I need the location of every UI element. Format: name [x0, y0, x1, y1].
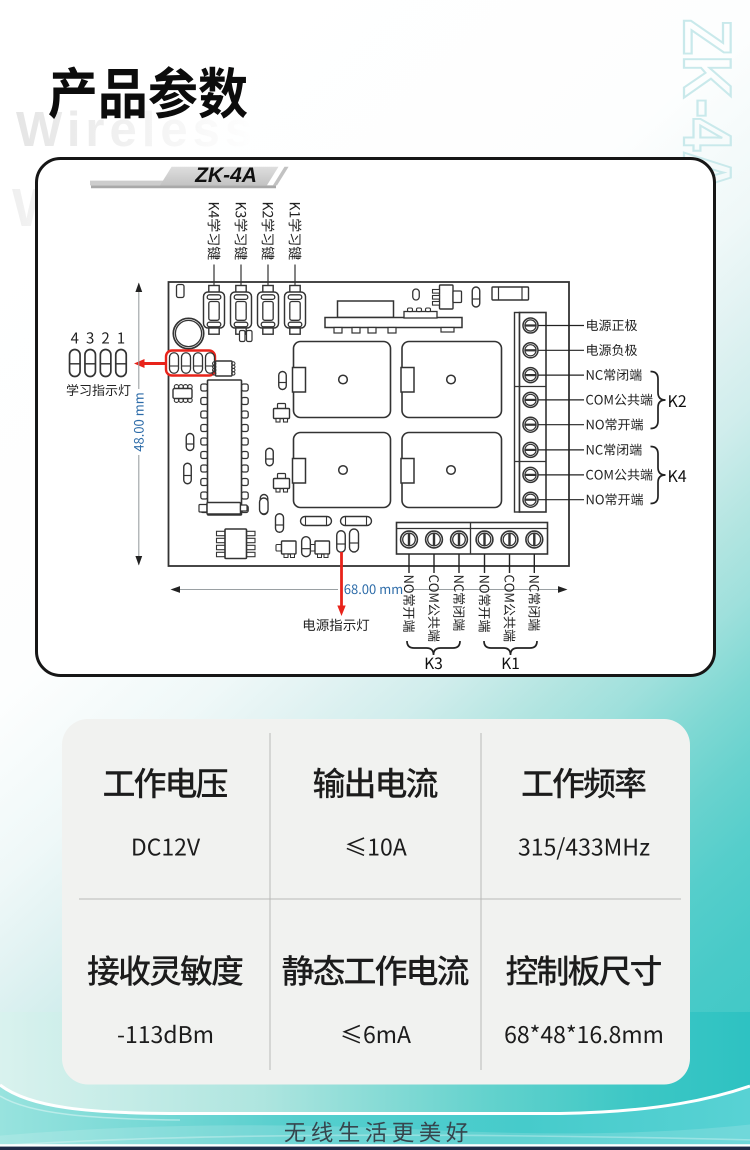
svg-text:ZK-4A: ZK-4A [194, 164, 257, 187]
